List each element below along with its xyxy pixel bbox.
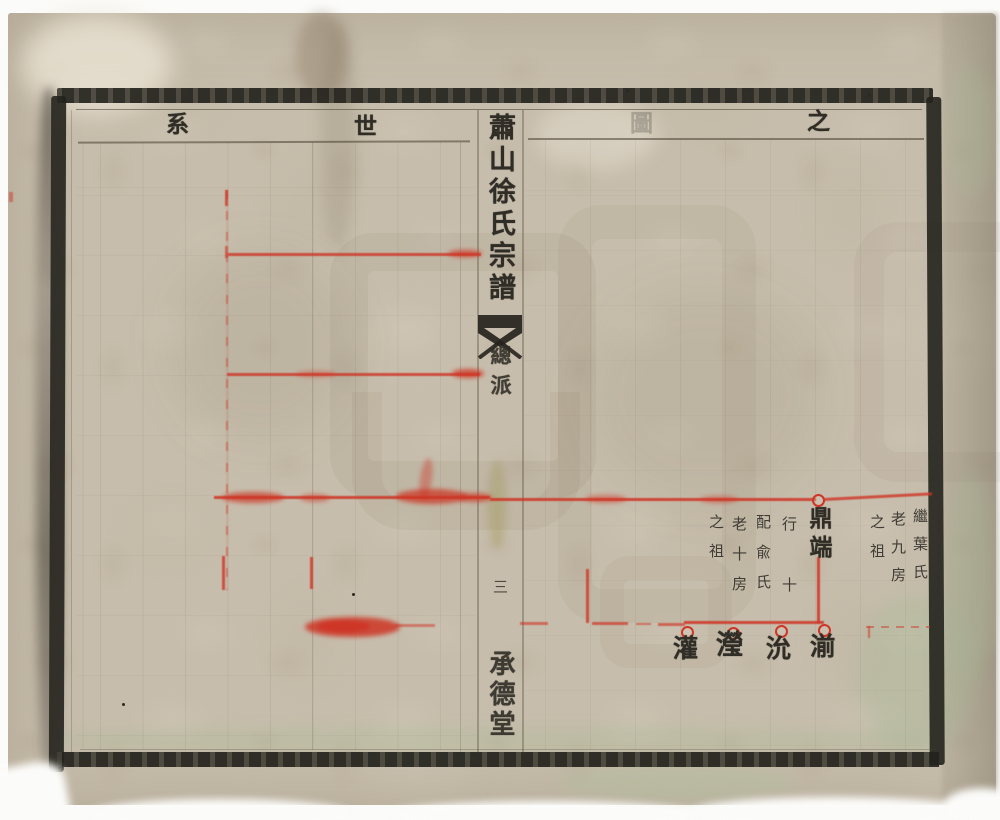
stain-water-streak (320, 20, 356, 250)
red-speck-edge (9, 192, 13, 202)
spine-rule-left (477, 110, 479, 753)
red-branch-line-2 (227, 373, 480, 376)
red-trunk-segment (225, 190, 228, 206)
red-tick (222, 556, 225, 590)
border-top (57, 88, 933, 103)
spine-page-number: 三 (493, 580, 508, 595)
ink-speck (626, 89, 629, 92)
red-blob (296, 371, 336, 377)
child-name-3: 瀅 (716, 632, 743, 659)
red-smudge (300, 494, 330, 502)
column-rule (460, 142, 461, 752)
watermark-shape (600, 556, 732, 668)
right-annotation-col-1: 繼葉氏 (912, 508, 927, 592)
child-name-4: 灌 (673, 636, 698, 661)
green-tint-bottom-right (856, 592, 976, 757)
red-children-line (684, 621, 824, 624)
ink-speck (352, 593, 355, 596)
node-annotation-col-3: 老十房 (731, 516, 746, 606)
red-vertical-from-node (817, 557, 820, 623)
red-smudge (585, 495, 627, 503)
stain-mid-dark (170, 250, 350, 440)
chart-node-name: 鼎端 (806, 506, 829, 564)
red-trunk-segment (225, 246, 228, 258)
red-children-line-dash (658, 623, 685, 626)
right-annotation-col-3: 之祖 (869, 514, 884, 572)
red-smudge (458, 493, 492, 502)
spine-hall-name: 承德堂 (487, 650, 513, 740)
red-children-line-dash (636, 623, 651, 625)
red-blob (452, 369, 484, 378)
inner-top-line (76, 109, 922, 110)
red-smudge (222, 492, 284, 503)
gutter-smear (36, 88, 62, 772)
red-main-line-spine (490, 498, 816, 501)
border-bottom (57, 752, 939, 767)
green-tint-below-border (556, 764, 796, 800)
red-blob (448, 250, 482, 257)
header-underline-right (528, 138, 924, 140)
red-smudge (700, 496, 738, 503)
child-name-1: 湔 (810, 634, 835, 659)
red-children-line-dash (592, 622, 628, 625)
spine-rule-right (522, 110, 524, 753)
red-dash-to-border (866, 626, 930, 628)
red-tick (310, 557, 313, 589)
red-blob-core (318, 621, 370, 632)
node-annotation-col-1: 行十 (781, 516, 796, 638)
inner-left-line (71, 110, 72, 752)
ragged-bottom-edge (690, 797, 980, 820)
red-lone-vertical (586, 569, 589, 623)
header-char-shi: 世 (354, 116, 377, 139)
red-branch-line-1 (228, 253, 481, 256)
scanned-genealogy-page: 系 世 圖 之 蕭山徐氏宗譜 總派 三 承德堂 鼎端 行十 配兪氏 老十房 之祖… (0, 0, 1000, 820)
red-children-line-spine (520, 622, 548, 625)
ink-speck (868, 94, 871, 97)
header-char-zhi: 之 (807, 111, 830, 134)
spine-title: 蕭山徐氏宗譜 (486, 113, 513, 305)
spine-section-label: 總派 (489, 344, 510, 404)
node-annotation-col-2: 配兪氏 (755, 514, 770, 604)
right-annotation-col-2: 老九房 (890, 511, 905, 595)
red-blob-tail (395, 624, 435, 627)
column-rule (312, 142, 313, 750)
green-tint-right-edge (944, 60, 996, 200)
child-name-2: 沇 (766, 636, 791, 661)
ink-speck (122, 703, 125, 706)
header-char-xi: 系 (166, 114, 189, 137)
node-annotation-col-4: 之祖 (708, 514, 723, 572)
watermark-shape (352, 392, 580, 530)
inner-bottom-line (80, 749, 936, 750)
header-char-tu-faded: 圖 (630, 113, 653, 136)
red-dash-tick (868, 626, 870, 638)
